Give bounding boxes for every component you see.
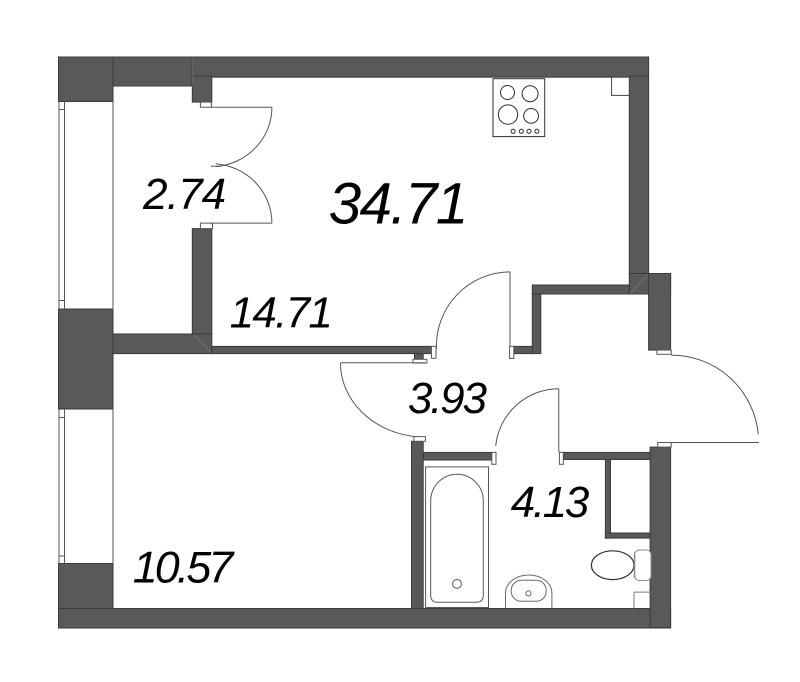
svg-text:2.74: 2.74: [142, 170, 225, 219]
svg-text:3.93: 3.93: [408, 374, 488, 423]
svg-text:4.13: 4.13: [511, 478, 590, 527]
svg-text:10.57: 10.57: [133, 542, 236, 592]
svg-text:14.71: 14.71: [230, 289, 332, 338]
svg-text:34.71: 34.71: [329, 171, 467, 236]
